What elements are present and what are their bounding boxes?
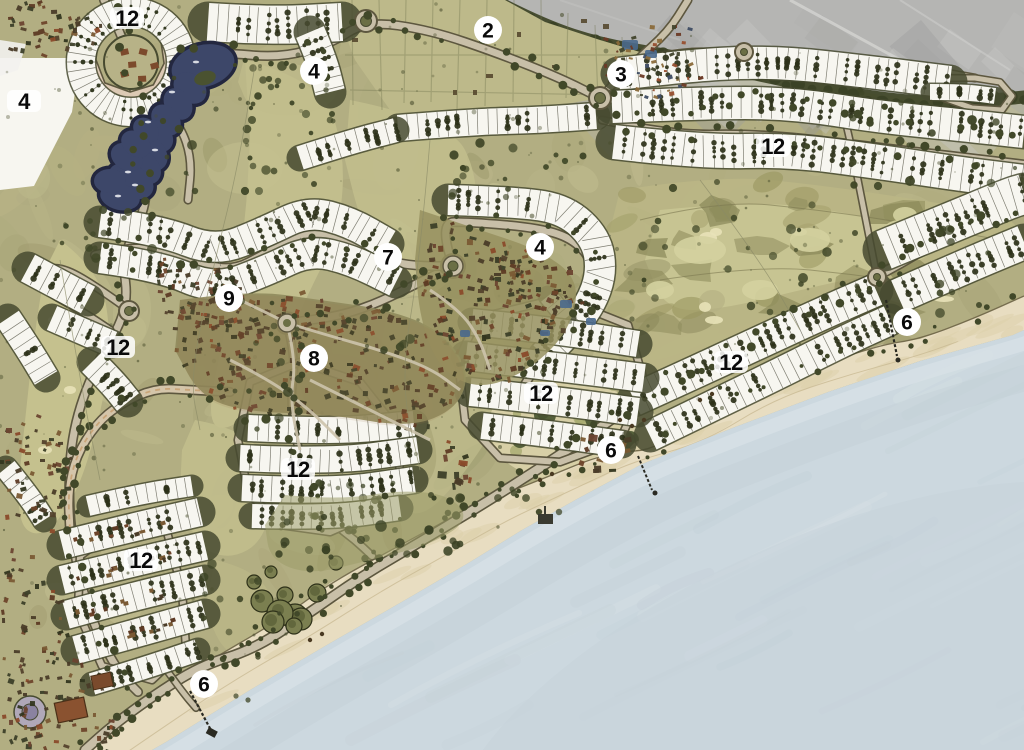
- svg-text:12: 12: [115, 6, 139, 31]
- svg-text:12: 12: [719, 350, 743, 375]
- svg-text:6: 6: [605, 440, 617, 463]
- svg-text:4: 4: [308, 61, 320, 84]
- svg-text:2: 2: [482, 20, 494, 43]
- svg-text:6: 6: [198, 674, 210, 697]
- svg-text:8: 8: [308, 348, 320, 371]
- svg-text:12: 12: [129, 548, 153, 573]
- svg-text:7: 7: [382, 247, 394, 270]
- svg-text:12: 12: [286, 457, 310, 482]
- svg-text:4: 4: [534, 237, 546, 260]
- svg-text:3: 3: [615, 64, 627, 87]
- svg-text:4: 4: [18, 89, 31, 114]
- svg-text:9: 9: [223, 288, 235, 311]
- svg-text:12: 12: [529, 381, 553, 406]
- svg-text:6: 6: [901, 312, 913, 335]
- svg-text:12: 12: [761, 134, 785, 159]
- svg-text:12: 12: [106, 335, 130, 360]
